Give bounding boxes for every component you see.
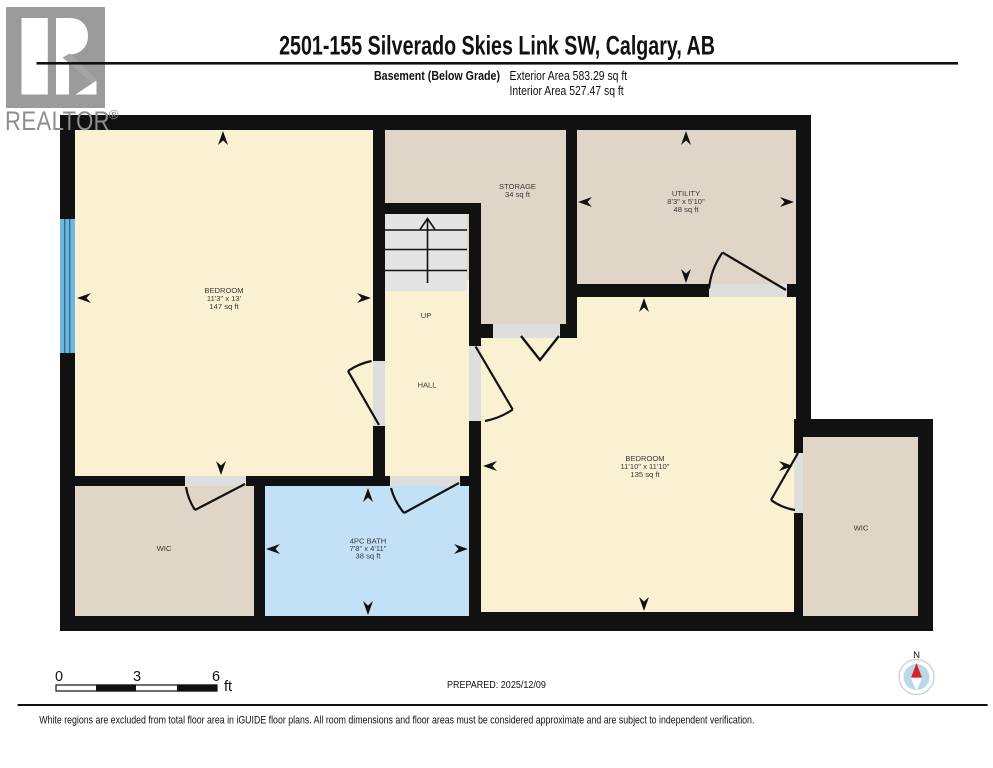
svg-text:WIC: WIC [157, 544, 172, 553]
svg-text:48 sq ft: 48 sq ft [674, 205, 700, 214]
svg-text:147 sq ft: 147 sq ft [209, 302, 239, 311]
svg-text:®: ® [109, 107, 119, 122]
svg-text:3: 3 [133, 669, 141, 685]
svg-text:REALTOR: REALTOR [5, 107, 110, 136]
svg-text:HALL: HALL [418, 381, 437, 390]
svg-text:0: 0 [55, 669, 63, 685]
svg-text:PREPARED: 2025/12/09: PREPARED: 2025/12/09 [447, 679, 546, 691]
svg-text:Basement (Below Grade): Basement (Below Grade) [374, 69, 500, 83]
svg-text:Interior Area 527.47 sq ft: Interior Area 527.47 sq ft [510, 85, 625, 98]
svg-text:38 sq ft: 38 sq ft [356, 552, 382, 561]
svg-text:White regions are excluded fro: White regions are excluded from total fl… [39, 715, 754, 727]
svg-text:135 sq ft: 135 sq ft [630, 470, 660, 479]
svg-text:6: 6 [212, 669, 220, 685]
svg-text:WIC: WIC [854, 524, 869, 533]
svg-text:UP: UP [421, 311, 432, 320]
svg-text:Exterior Area 583.29 sq ft: Exterior Area 583.29 sq ft [510, 70, 628, 83]
svg-text:2501-155 Silverado Skies Link: 2501-155 Silverado Skies Link SW, Calgar… [279, 32, 715, 62]
svg-text:34 sq ft: 34 sq ft [505, 190, 531, 199]
svg-text:ft: ft [224, 679, 232, 695]
svg-text:N: N [913, 650, 920, 661]
